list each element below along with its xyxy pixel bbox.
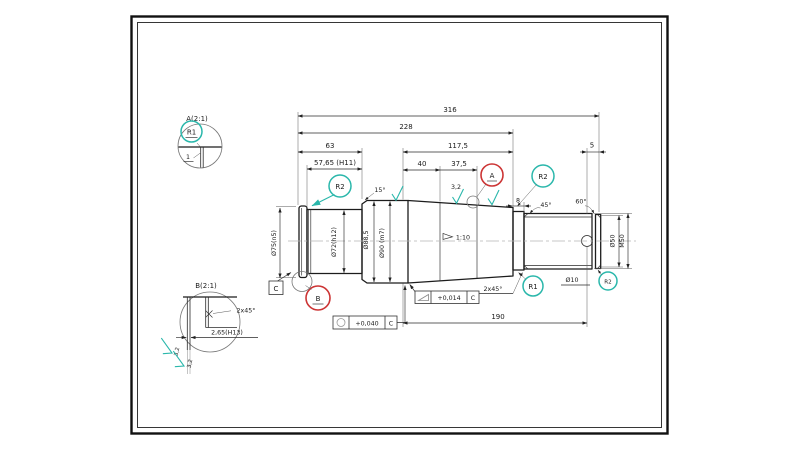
main-view: 316 228 63 117,5 57,65 (H11) 40 37,5 bbox=[269, 106, 636, 329]
angle-45-label: 45° bbox=[540, 201, 551, 209]
callout-r2-right: R2 bbox=[518, 165, 555, 206]
dim-value-dia50: Ø50 bbox=[609, 235, 617, 248]
angle-15-leader bbox=[365, 193, 374, 200]
callout-r1-label: R1 bbox=[528, 283, 537, 291]
dim-value-dia90: Ø90 (m7) bbox=[378, 228, 386, 258]
dimension-117-5: 117,5 bbox=[403, 142, 513, 152]
fcf1-value: +0,014 bbox=[437, 295, 460, 302]
angle-60-label: 60° bbox=[575, 198, 586, 206]
angle-45: 45° bbox=[530, 201, 552, 214]
detail-b-width-label: 2,65(H13) bbox=[211, 330, 243, 337]
shaft-end-collar bbox=[596, 215, 601, 269]
shaft-drawing-svg: A(2:1) R1 1 B(2:1) 2x45° 2,65(H13) bbox=[0, 0, 800, 450]
callout-detail-b: B bbox=[292, 272, 330, 311]
detail-a-view: A(2:1) R1 1 bbox=[178, 115, 222, 168]
roughness-check-2 bbox=[453, 189, 464, 203]
callout-a-label: A bbox=[490, 172, 495, 180]
drawing-border bbox=[132, 17, 668, 434]
datum-c-label: C bbox=[274, 285, 279, 293]
detail-b-view: B(2:1) 2x45° 2,65(H13) 3,2 3,2 bbox=[156, 282, 258, 374]
callout-r2-right-leader bbox=[518, 185, 537, 207]
angle-60: 60° bbox=[575, 198, 594, 214]
callout-r2-end-label: R2 bbox=[604, 280, 611, 286]
callout-r2-end-leader bbox=[598, 270, 602, 275]
dim-value-63: 63 bbox=[326, 142, 335, 150]
angle-15: 15° bbox=[365, 186, 386, 200]
dimension-dia50: Ø50 bbox=[609, 216, 620, 268]
dimension-57-65: 57,65 (H11) bbox=[307, 159, 362, 169]
border-outer bbox=[132, 17, 668, 434]
taper-annotation: 1:10 bbox=[443, 234, 470, 242]
callout-r2-right-label: R2 bbox=[538, 173, 547, 181]
dimension-dia75: Ø75(n5) bbox=[270, 208, 280, 278]
chamfer-2x45-leader bbox=[513, 273, 523, 294]
dim-value-8: 8 bbox=[516, 198, 520, 205]
roughness-check-3 bbox=[488, 190, 499, 205]
callout-a-leader bbox=[477, 184, 487, 198]
roughness-check-1 bbox=[392, 186, 403, 200]
callout-r2-end: R2 bbox=[598, 270, 617, 290]
angle-15-label: 15° bbox=[374, 186, 385, 194]
shaft-collar-75 bbox=[299, 206, 307, 278]
roughness-value-main: 3,2 bbox=[451, 184, 461, 191]
dim-value-40: 40 bbox=[418, 160, 427, 168]
angle-60-arc bbox=[585, 206, 594, 214]
fcf2-datum: C bbox=[389, 321, 394, 328]
callout-r2-left: R2 bbox=[312, 175, 351, 206]
dim-value-5: 5 bbox=[590, 142, 594, 150]
shaft-cone-section bbox=[408, 201, 513, 284]
fcf-taper-tolerance: +0,014 C bbox=[410, 285, 479, 304]
dim-value-316: 316 bbox=[443, 106, 457, 114]
roughness-symbol-detail-b-1 bbox=[156, 338, 176, 357]
dimension-228: 228 bbox=[298, 123, 513, 133]
dim-value-m50: M50 bbox=[619, 234, 626, 247]
dim-value-dia72: Ø72(h12) bbox=[330, 227, 338, 257]
dim-value-dia10: Ø10 bbox=[566, 276, 579, 284]
roughness-value-detail-b-2: 3,2 bbox=[187, 359, 195, 369]
roughness-value-detail-b-1: 3,2 bbox=[174, 347, 182, 357]
detail-a-r1-label: R1 bbox=[187, 129, 196, 137]
dim-value-228: 228 bbox=[399, 123, 412, 131]
dim-value-dia88-5: Ø88,5 bbox=[362, 231, 370, 250]
detail-a-width-label: 1 bbox=[186, 154, 190, 161]
fcf1-datum: C bbox=[471, 295, 476, 302]
dim-value-190: 190 bbox=[491, 313, 504, 321]
taper-symbol bbox=[443, 234, 453, 240]
border-inner bbox=[138, 23, 662, 428]
dimension-dia10: Ø10 bbox=[561, 276, 590, 285]
dimension-dia88-5: Ø88,5 bbox=[362, 202, 374, 283]
callout-detail-a: A bbox=[467, 164, 503, 208]
dimension-37-5: 37,5 bbox=[440, 160, 477, 170]
detail-b-title: B(2:1) bbox=[195, 282, 217, 290]
detail-a-width-leader bbox=[194, 153, 202, 159]
detail-b-chamfer-label: 2x45° bbox=[237, 307, 256, 315]
dimension-5: 5 bbox=[580, 142, 606, 153]
fcf2-leader bbox=[397, 286, 405, 323]
datum-c-leader bbox=[278, 273, 292, 282]
chamfer-2x45: 2x45° bbox=[477, 273, 523, 294]
taper-ratio-label: 1:10 bbox=[456, 234, 470, 241]
dimension-316: 316 bbox=[298, 106, 599, 116]
dimension-40: 40 bbox=[403, 160, 440, 170]
fcf2-value: +0,040 bbox=[355, 321, 378, 328]
dim-value-57-65: 57,65 (H11) bbox=[314, 159, 356, 167]
dimension-190: 190 bbox=[403, 313, 587, 323]
dim-value-117-5: 117,5 bbox=[448, 142, 468, 150]
callout-r2-left-leader bbox=[312, 195, 335, 206]
detail-b-circle bbox=[180, 292, 240, 352]
dim-value-37-5: 37,5 bbox=[451, 160, 467, 168]
fcf-profile-tolerance: +0,040 C bbox=[333, 286, 405, 330]
detail-b-chamfer-leader bbox=[213, 311, 231, 314]
angle-45-arc bbox=[530, 208, 541, 214]
callout-b-label: B bbox=[316, 295, 321, 303]
dimension-63: 63 bbox=[298, 142, 362, 152]
dimension-dia90: Ø90 (m7) bbox=[378, 202, 390, 283]
chamfer-2x45-label: 2x45° bbox=[484, 285, 503, 293]
cad-drawing-page: A(2:1) R1 1 B(2:1) 2x45° 2,65(H13) bbox=[0, 0, 800, 450]
dim-value-dia75: Ø75(n5) bbox=[270, 230, 278, 256]
dimension-dia72: Ø72(h12) bbox=[330, 211, 344, 273]
callout-r2-left-label: R2 bbox=[335, 183, 344, 191]
detail-a-r1-leader bbox=[197, 143, 200, 147]
callout-r1: R1 bbox=[519, 273, 544, 297]
